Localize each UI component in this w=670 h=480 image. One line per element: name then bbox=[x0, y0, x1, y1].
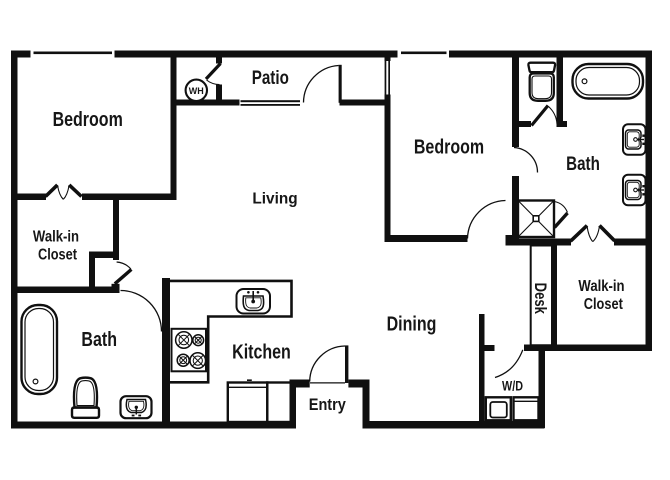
svg-text:WH: WH bbox=[189, 86, 204, 96]
svg-text:Bedroom: Bedroom bbox=[53, 108, 123, 130]
svg-text:Kitchen: Kitchen bbox=[232, 341, 291, 363]
svg-text:Living: Living bbox=[252, 190, 297, 207]
svg-text:Dining: Dining bbox=[387, 313, 437, 335]
svg-text:Desk: Desk bbox=[531, 283, 550, 315]
svg-text:Walk-in: Walk-in bbox=[33, 228, 79, 245]
svg-text:Bedroom: Bedroom bbox=[414, 136, 484, 158]
svg-text:Closet: Closet bbox=[38, 246, 77, 264]
svg-text:Patio: Patio bbox=[252, 66, 289, 88]
svg-text:Closet: Closet bbox=[584, 296, 623, 314]
svg-text:Entry: Entry bbox=[309, 396, 346, 414]
svg-text:Bath: Bath bbox=[566, 152, 600, 174]
svg-text:Walk-in: Walk-in bbox=[578, 278, 624, 295]
svg-text:Bath: Bath bbox=[81, 328, 117, 350]
svg-text:W/D: W/D bbox=[502, 379, 523, 394]
